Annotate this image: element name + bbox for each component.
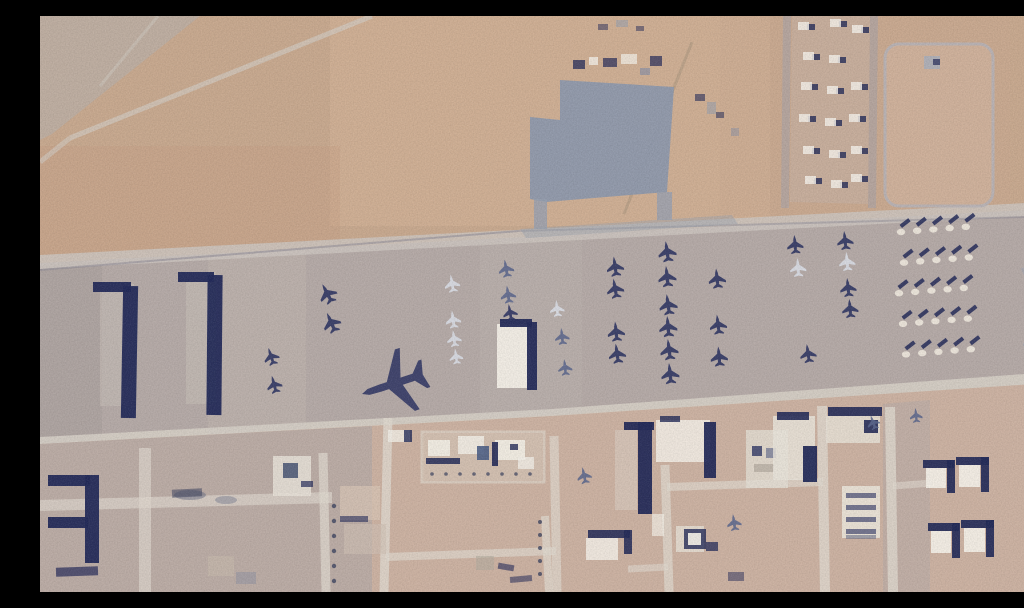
satellite-photo bbox=[40, 16, 1024, 592]
scene-root bbox=[40, 16, 1024, 592]
film-grain bbox=[40, 16, 1024, 592]
satellite-photo-frame: Satellite aerial photograph of a desert … bbox=[40, 16, 1024, 592]
